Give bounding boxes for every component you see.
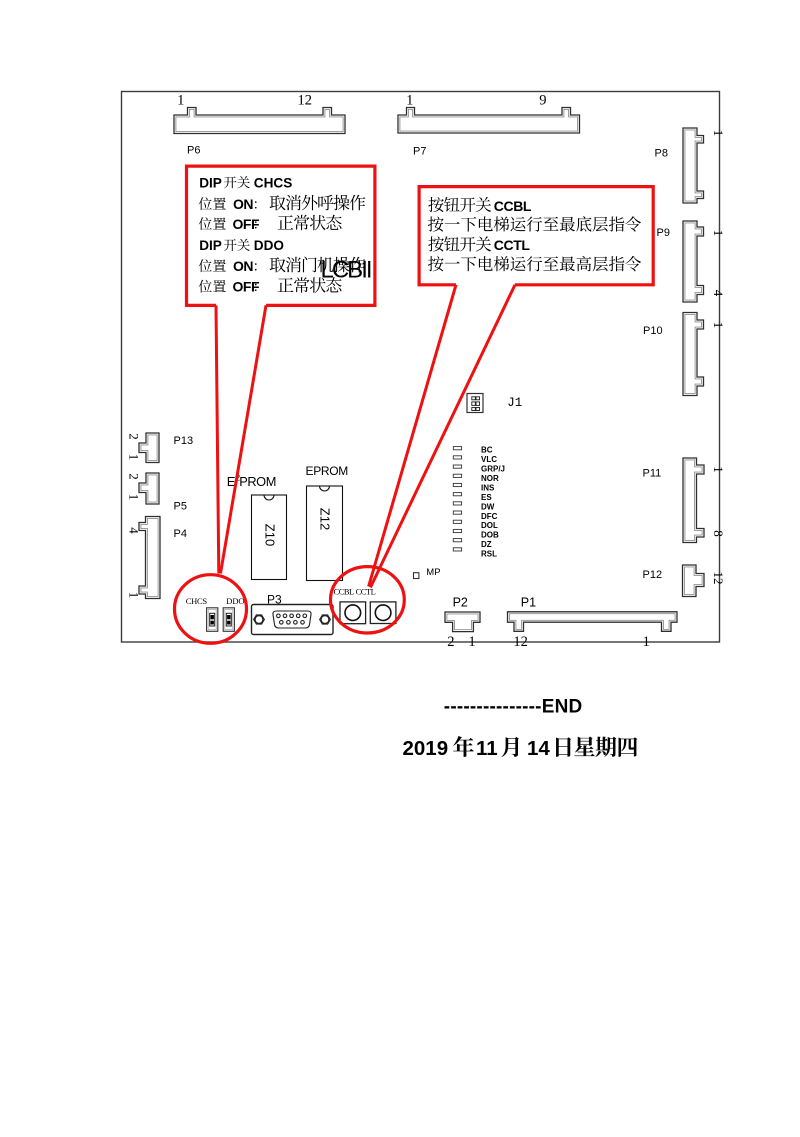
svg-text:9: 9 [539, 92, 546, 108]
svg-text:DIP: DIP [199, 175, 222, 190]
svg-text:Z12: Z12 [318, 508, 333, 530]
svg-text:P10: P10 [643, 325, 663, 337]
svg-text:NOR: NOR [481, 474, 499, 483]
svg-text:ON: ON [233, 196, 253, 212]
svg-text:CHCS: CHCS [186, 596, 208, 606]
svg-text:RSL: RSL [481, 550, 497, 559]
svg-text:DIP: DIP [199, 238, 222, 253]
svg-text:1: 1 [468, 634, 475, 650]
svg-text:P1: P1 [521, 595, 536, 609]
svg-text:DOL: DOL [481, 521, 498, 530]
svg-text:P5: P5 [174, 501, 187, 513]
svg-text:CHCS: CHCS [254, 175, 293, 190]
svg-text:DFC: DFC [481, 512, 498, 521]
svg-text:14: 14 [527, 737, 550, 760]
svg-text:P7: P7 [413, 146, 426, 158]
svg-text:2: 2 [127, 433, 142, 440]
svg-text:4: 4 [127, 527, 142, 534]
svg-text:OFF: OFF [233, 216, 260, 232]
svg-text:GRP/J: GRP/J [481, 465, 505, 474]
svg-text:P9: P9 [657, 227, 670, 239]
svg-text:1: 1 [406, 92, 413, 108]
svg-text:1: 1 [127, 592, 142, 599]
svg-text:CCBL: CCBL [494, 198, 532, 214]
svg-text:---------------END: ---------------END [444, 697, 583, 718]
svg-text:1: 1 [711, 466, 726, 473]
svg-text:CCBL: CCBL [334, 587, 355, 597]
svg-text:8: 8 [711, 530, 726, 537]
svg-text:1: 1 [127, 454, 142, 461]
svg-text:DW: DW [481, 502, 495, 511]
svg-text:P3: P3 [267, 593, 282, 607]
svg-text:MP: MP [426, 567, 440, 578]
svg-text:1: 1 [711, 322, 726, 329]
svg-text:ES: ES [481, 493, 492, 502]
svg-text:11: 11 [476, 737, 498, 760]
svg-text:2019: 2019 [403, 737, 449, 760]
svg-text:DDO: DDO [254, 238, 284, 253]
svg-text:DOB: DOB [481, 531, 499, 540]
svg-text:DDO: DDO [226, 596, 244, 606]
svg-text:1: 1 [127, 494, 142, 501]
svg-text:P8: P8 [655, 148, 668, 160]
svg-text:INS: INS [481, 483, 495, 492]
svg-text:12: 12 [297, 92, 312, 108]
svg-text:CCTL: CCTL [356, 587, 376, 597]
svg-text:ON: ON [233, 258, 253, 274]
svg-text:EPROM: EPROM [306, 464, 349, 478]
svg-text:DZ: DZ [481, 540, 492, 549]
svg-text:12: 12 [711, 572, 726, 585]
svg-text:1: 1 [711, 230, 726, 237]
svg-text:P6: P6 [187, 145, 200, 157]
svg-text:2: 2 [447, 634, 454, 650]
svg-text:PROM: PROM [239, 474, 276, 489]
svg-text:12: 12 [513, 634, 528, 650]
svg-text:P4: P4 [174, 528, 187, 540]
svg-text:Z10: Z10 [263, 524, 278, 546]
svg-text:P2: P2 [453, 595, 468, 609]
svg-text:4: 4 [711, 290, 726, 297]
svg-text:BC: BC [481, 446, 493, 455]
svg-text:OFF: OFF [233, 279, 260, 295]
svg-text:CCTL: CCTL [494, 237, 531, 253]
svg-text:1: 1 [177, 92, 184, 108]
svg-text:P11: P11 [643, 468, 662, 480]
svg-text:1: 1 [711, 130, 726, 137]
svg-text:J1: J1 [507, 396, 522, 410]
svg-text:P13: P13 [174, 435, 194, 447]
svg-text:2: 2 [127, 473, 142, 480]
svg-text:1: 1 [643, 634, 650, 650]
svg-text:P12: P12 [643, 569, 663, 581]
svg-text:VLC: VLC [481, 455, 497, 464]
